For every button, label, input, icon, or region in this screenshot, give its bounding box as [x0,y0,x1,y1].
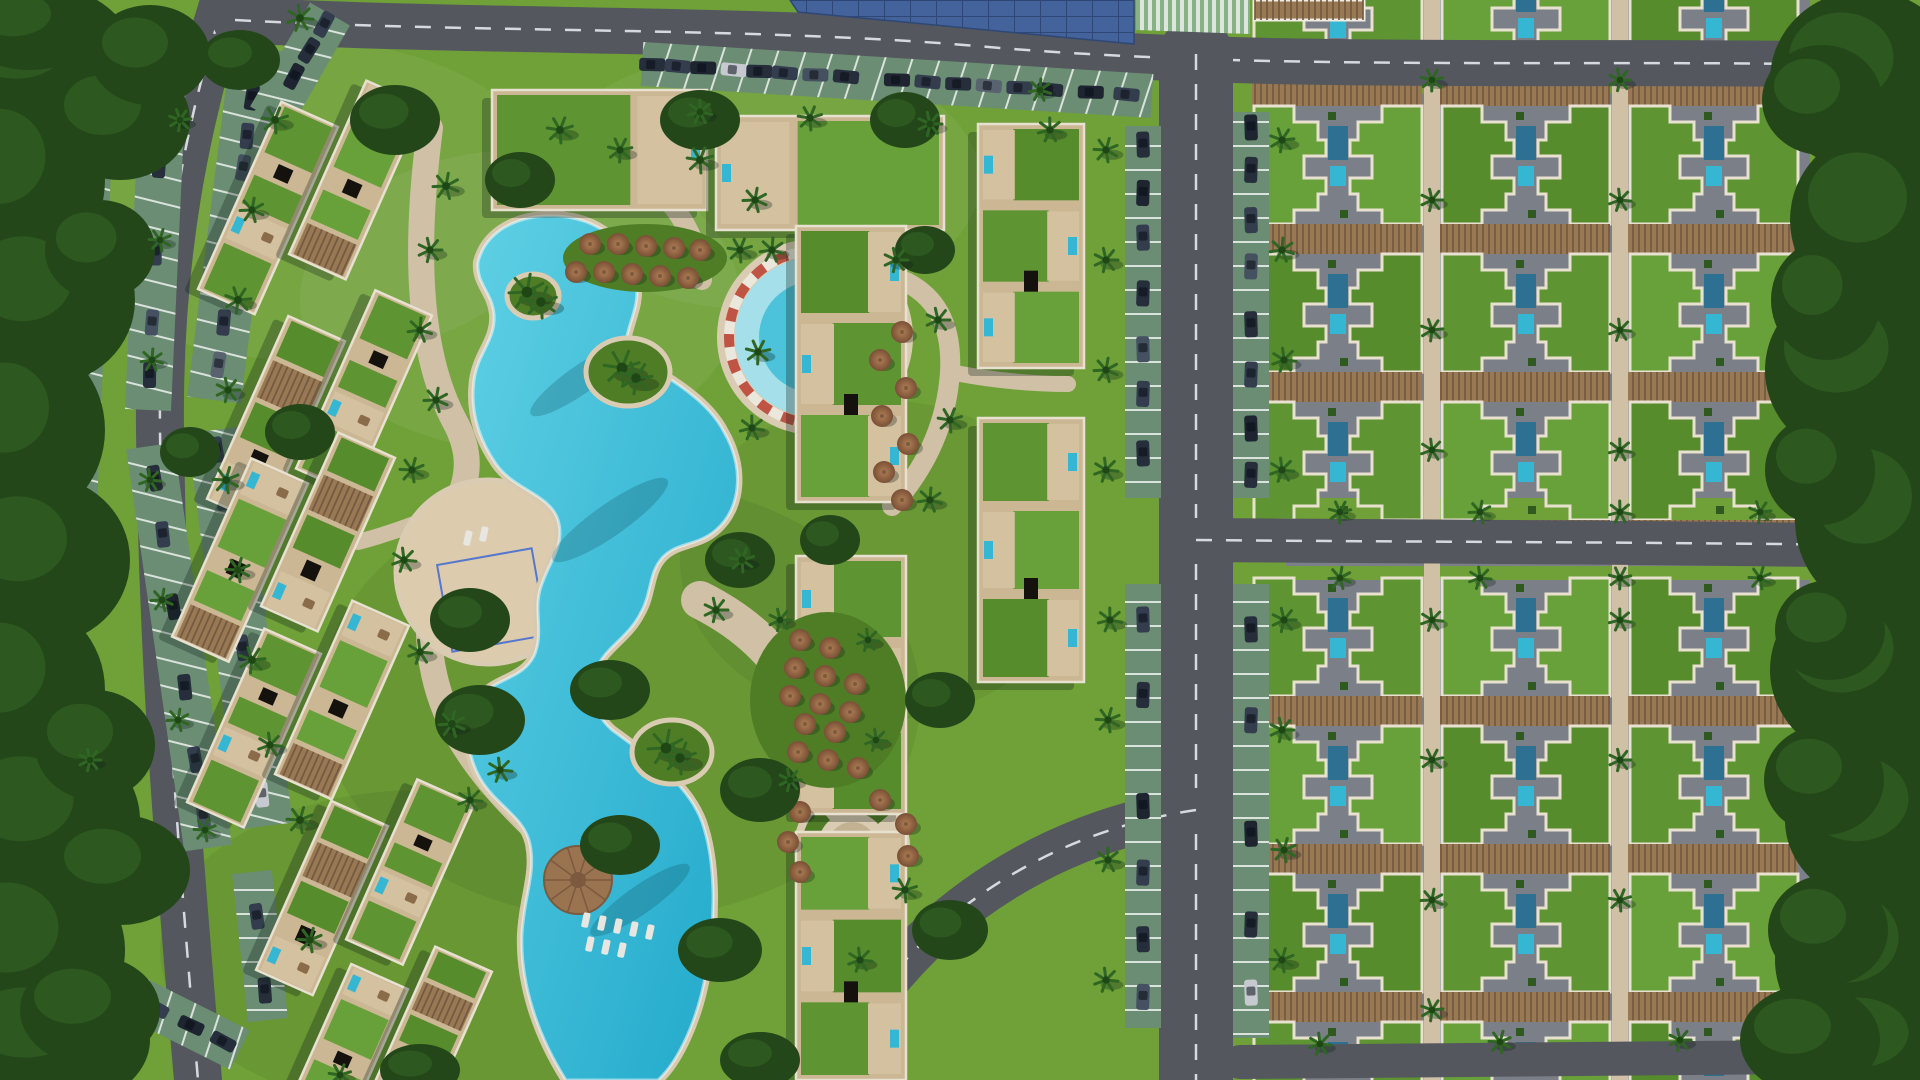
villa-shrub [1704,584,1712,592]
palm-crown [1102,976,1109,983]
car [1136,180,1150,206]
palm-crown [1617,77,1624,84]
villa-shrub [1528,506,1536,514]
palm-crown [926,496,933,503]
villa-shrub [1516,880,1524,888]
car [1136,381,1150,407]
umbrella-tip [796,750,800,754]
pergola-slats [1252,992,1422,1022]
villa-block [1252,578,1422,726]
palm-crown [306,936,313,943]
car [1136,224,1150,250]
umbrella-tip [786,840,790,844]
palm-crown [751,196,758,203]
palm-crown [754,348,761,355]
car-roof [1138,388,1147,397]
forest [45,200,155,300]
pergola-slats [1628,224,1798,254]
car [639,58,665,72]
car [1244,361,1258,387]
umbrella-tip [853,682,857,686]
car [690,61,716,75]
villa-pool [1706,786,1722,806]
car-roof [1246,918,1255,927]
tree-canopy-highlight [492,159,531,187]
umbrella-tip [698,248,702,252]
tree-clump [580,815,660,875]
car-roof [1138,991,1147,1000]
pergola-slats [1252,696,1422,726]
palm-crown [631,373,641,383]
umbrella-tip [798,638,802,642]
car-roof [1120,89,1130,99]
villa-pool [1330,638,1346,658]
car [1136,606,1150,632]
car-roof [891,75,900,84]
car-roof [697,63,706,72]
umbrella-tip [602,270,606,274]
palm-crown [806,114,813,121]
tree-clump [570,660,650,720]
tree-clump [678,918,762,982]
tree-canopy-highlight [1808,153,1907,243]
roof-lawn [1013,292,1079,363]
palm-crown [1102,146,1109,153]
palm-crown [946,416,953,423]
tree-canopy-highlight [388,1051,432,1077]
palm-crown [522,287,533,298]
villa-pool [1706,638,1722,658]
umbrella-tip [803,722,807,726]
car-roof [952,79,961,88]
palm-crown [934,316,941,323]
tree-clump [350,85,440,155]
forest [20,955,160,1065]
palm-crown [892,256,899,263]
palm-crown [1429,447,1436,454]
car-roof [646,60,655,69]
palm-crown [1429,617,1436,624]
palm-crown [1337,575,1344,582]
forest [1765,415,1875,525]
courtyard-slot [1024,578,1038,602]
villa-pool [1330,786,1346,806]
tree-clump [200,30,280,90]
palm-crown [1617,509,1624,516]
car-roof [753,67,762,76]
villa-shrub [1528,210,1536,218]
palm-crown [1280,846,1287,853]
tree-canopy-highlight [1786,593,1847,643]
car [1244,157,1258,183]
terrace-pool [984,541,993,559]
umbrella-tip [900,498,904,502]
villa-pool [1518,166,1534,186]
tree-clump [265,404,335,460]
forest [1768,875,1888,985]
palm-crown [738,556,745,563]
car [664,59,691,74]
palm-crown [202,827,209,834]
car-roof [260,984,270,994]
palm-crown [1037,87,1044,94]
villa-shrub [1704,1028,1712,1036]
palm-crown [1497,1039,1504,1046]
tree-clump [800,515,860,565]
car [1244,253,1258,279]
villa-block [1252,874,1422,1022]
tree-canopy-highlight [56,213,117,263]
tree-canopy-highlight [578,668,622,698]
car-roof [778,68,788,78]
palm-crown [1104,856,1111,863]
villa-shrub [1328,260,1336,268]
palm-crown [1278,246,1285,253]
car [1244,415,1258,441]
palm-crown [1102,256,1109,263]
palm-crown [177,117,184,124]
villa-shrub [1704,260,1712,268]
tree-canopy-highlight [806,521,839,546]
tree-canopy-highlight [1782,255,1843,315]
villa-pool [1330,166,1346,186]
pergola-slats [1440,372,1610,402]
palm-crown [1046,126,1053,133]
palm-crown [1106,616,1113,623]
palm-crown [536,297,546,307]
pergola-slats [1440,696,1610,726]
villa-pool [1704,598,1724,632]
terrace-pool [722,164,731,182]
pergola-slats [1628,844,1798,874]
villa-pool [1330,934,1346,954]
palm-crown [1429,757,1436,764]
car [1136,440,1150,466]
car-roof [1138,287,1147,296]
villa-pool [1328,422,1348,456]
villa-pool [1704,746,1724,780]
car [746,65,772,79]
umbrella-tip [672,246,676,250]
car [1244,616,1258,642]
tree-clump [160,427,220,477]
car [1113,87,1140,102]
villa-pool [1516,126,1536,160]
villa-pool [1328,598,1348,632]
car-roof [840,72,850,82]
villa-pool [1516,598,1536,632]
car-roof [1246,469,1255,478]
palm-crown [696,108,703,115]
tree-canopy-highlight [901,232,934,256]
car-roof [1246,260,1255,269]
car [1244,207,1258,233]
car-roof [1246,164,1255,173]
car [1244,707,1258,733]
villa-shrub [1516,408,1524,416]
villa-shrub [1328,408,1336,416]
car [802,68,828,82]
palm-crown [337,1072,344,1079]
villa-shrub [1340,830,1348,838]
car-roof [1246,422,1255,431]
umbrella-tip [904,822,908,826]
car [1136,336,1150,362]
car [832,69,859,84]
palm-crown [1278,466,1285,473]
palm-crown [1317,1041,1324,1048]
palm-crown [266,741,273,748]
terrace-pool [890,1030,899,1048]
palm-crown [1280,356,1287,363]
villa-pool [1704,422,1724,456]
villa-shrub [1516,584,1524,592]
palm-crown [748,424,755,431]
palm-crown [1617,447,1624,454]
villa-pool [1330,314,1346,334]
villa-shrub [1528,682,1536,690]
pergola-slats [1440,224,1610,254]
car-roof [1246,368,1255,377]
car-roof [1246,318,1255,327]
car-roof [1138,138,1147,147]
umbrella-tip [878,358,882,362]
tree-canopy-highlight [728,1039,772,1067]
villa-pool [1518,786,1534,806]
courtyard-slot [844,394,858,418]
palm-crown [175,717,182,724]
villa-block [1440,254,1610,402]
villa-shrub [1516,732,1524,740]
palm-crown [696,156,704,164]
tree-canopy-highlight [166,433,199,458]
palm-crown [1102,366,1109,373]
villa-block [1440,578,1610,726]
car-roof [158,528,168,538]
umbrella-tip [900,330,904,334]
car-roof [727,65,737,75]
forest [1771,240,1881,360]
villa-shrub [1528,978,1536,986]
terrace-pool [802,590,811,608]
car [1136,926,1150,952]
villa-shrub [1328,112,1336,120]
tree-canopy-highlight [1774,59,1840,114]
villa-shrub [1340,358,1348,366]
roof-lawn [801,1002,869,1075]
tree-canopy-highlight [1754,999,1831,1054]
umbrella-tip [856,766,860,770]
villa-block [1252,726,1422,874]
car-roof [1138,689,1147,698]
palm-crown [712,606,719,613]
terrace-pool [1068,453,1077,471]
umbrella-tip [906,854,910,858]
palm-crown [1477,575,1484,582]
palm-crown [248,206,255,213]
apartment-block [968,418,1084,690]
palm-crown [147,477,154,484]
villa-block [1440,106,1610,254]
tree-canopy-highlight [912,679,951,707]
tree-canopy-highlight [877,99,916,127]
tree-canopy-highlight [1776,739,1842,794]
forest [35,690,155,800]
palm-crown [1429,1007,1436,1014]
umbrella-tip [588,242,592,246]
resort-aerial-view [0,0,1920,1080]
car-roof [147,316,157,326]
tree-canopy-highlight [34,969,111,1024]
villa-pool [1704,126,1724,160]
car-roof [1138,187,1147,196]
tree-canopy-highlight [102,18,168,68]
villa-pool [1330,462,1346,482]
villa-shrub [1516,260,1524,268]
tree-clump [430,588,510,652]
umbrella-tip [630,272,634,276]
palm-crown [1677,1037,1684,1044]
umbrella-tip [878,798,882,802]
villa-pool [1328,894,1348,928]
car-roof [1138,447,1147,456]
palm-crown [675,753,685,763]
palm-crown [873,737,880,744]
car-roof [1246,828,1255,837]
palm-crown [234,566,241,573]
palm-crown [222,476,230,484]
villa-pool [1704,894,1724,928]
palm-crown [1757,575,1764,582]
pavilion-slats [1254,0,1364,20]
umbrella-tip [793,666,797,670]
umbrella-tip [818,702,822,706]
villa-pool [1516,422,1536,456]
palm-crown [616,146,623,153]
courtyard-slot [844,981,858,1005]
car [1136,793,1150,819]
car [1244,820,1258,846]
palm-crown [1278,726,1285,733]
palm-crown [556,126,564,134]
car [216,309,231,336]
villa-shrub [1704,112,1712,120]
car-roof [1013,83,1022,92]
forest [1764,725,1884,835]
umbrella-tip [906,442,910,446]
palm-crown [777,617,784,624]
car-roof [213,358,223,368]
terrace-pool [890,447,899,465]
roof-lawn [801,231,869,313]
palm-crown [1617,617,1624,624]
umbrella-tip [788,694,792,698]
palm-crown [296,816,304,824]
car [1244,979,1258,1005]
terrace-pool [984,318,993,336]
car-roof [921,77,931,87]
palm-crown [1278,136,1285,143]
car [1136,984,1150,1010]
tree-clump [485,152,555,208]
forest [90,5,210,105]
palm-crown [926,120,933,127]
villa-shrub [1528,358,1536,366]
forest [50,815,190,925]
villa-pool [1518,18,1534,38]
villa-pool [1704,274,1724,308]
palm-crown [736,246,743,253]
car-roof [1138,343,1147,352]
palm-island [586,338,670,406]
palm-crown [1617,757,1624,764]
tree-canopy-highlight [686,926,732,958]
tree-canopy-highlight [272,411,311,439]
villa-shrub [1516,112,1524,120]
umbrella-tip [904,386,908,390]
villa-shrub [1716,682,1724,690]
palm-crown [1429,77,1436,84]
terrace-pool [1068,237,1077,255]
forest [1775,580,1885,680]
villa-shrub [1340,978,1348,986]
umbrella-tip [616,242,620,246]
deck-hub [570,872,586,888]
umbrella-tip [882,470,886,474]
car-roof [1138,933,1147,942]
car [1136,682,1150,708]
car [1078,85,1104,99]
car [914,74,941,89]
pergola-slats [1252,372,1422,402]
forest [1762,45,1882,155]
car-roof [809,70,818,79]
palm-crown [1617,897,1624,904]
villa-shrub [1328,732,1336,740]
umbrella-tip [686,276,690,280]
villa-pool [1706,314,1722,334]
roof-lawn [983,599,1049,677]
palm-crown [1429,897,1436,904]
roof-lawn [833,920,901,993]
villa-pool [1706,18,1722,38]
villa-pool [1518,462,1534,482]
villa-pool [1328,126,1348,160]
villa-shrub [1528,830,1536,838]
palm-crown [159,597,166,604]
villa-block [1252,254,1422,402]
villa-shrub [1340,682,1348,690]
umbrella-tip [798,870,802,874]
car [975,78,1002,93]
roof-lawn [1013,511,1079,589]
palm-crown [149,357,156,364]
car-roof [1138,231,1147,240]
palm-crown [1757,509,1764,516]
villa-shrub [1716,358,1724,366]
palm-crown [426,246,433,253]
villa-pool [1518,314,1534,334]
terrace-pool [802,355,811,373]
palm-crown [768,246,775,253]
tree-canopy-highlight [588,823,632,853]
villa-shrub [1704,880,1712,888]
palm-crown [466,796,473,803]
palm-crown [901,886,908,893]
villa-pool [1518,934,1534,954]
villa-shrub [1716,506,1724,514]
palm-island [632,720,712,784]
